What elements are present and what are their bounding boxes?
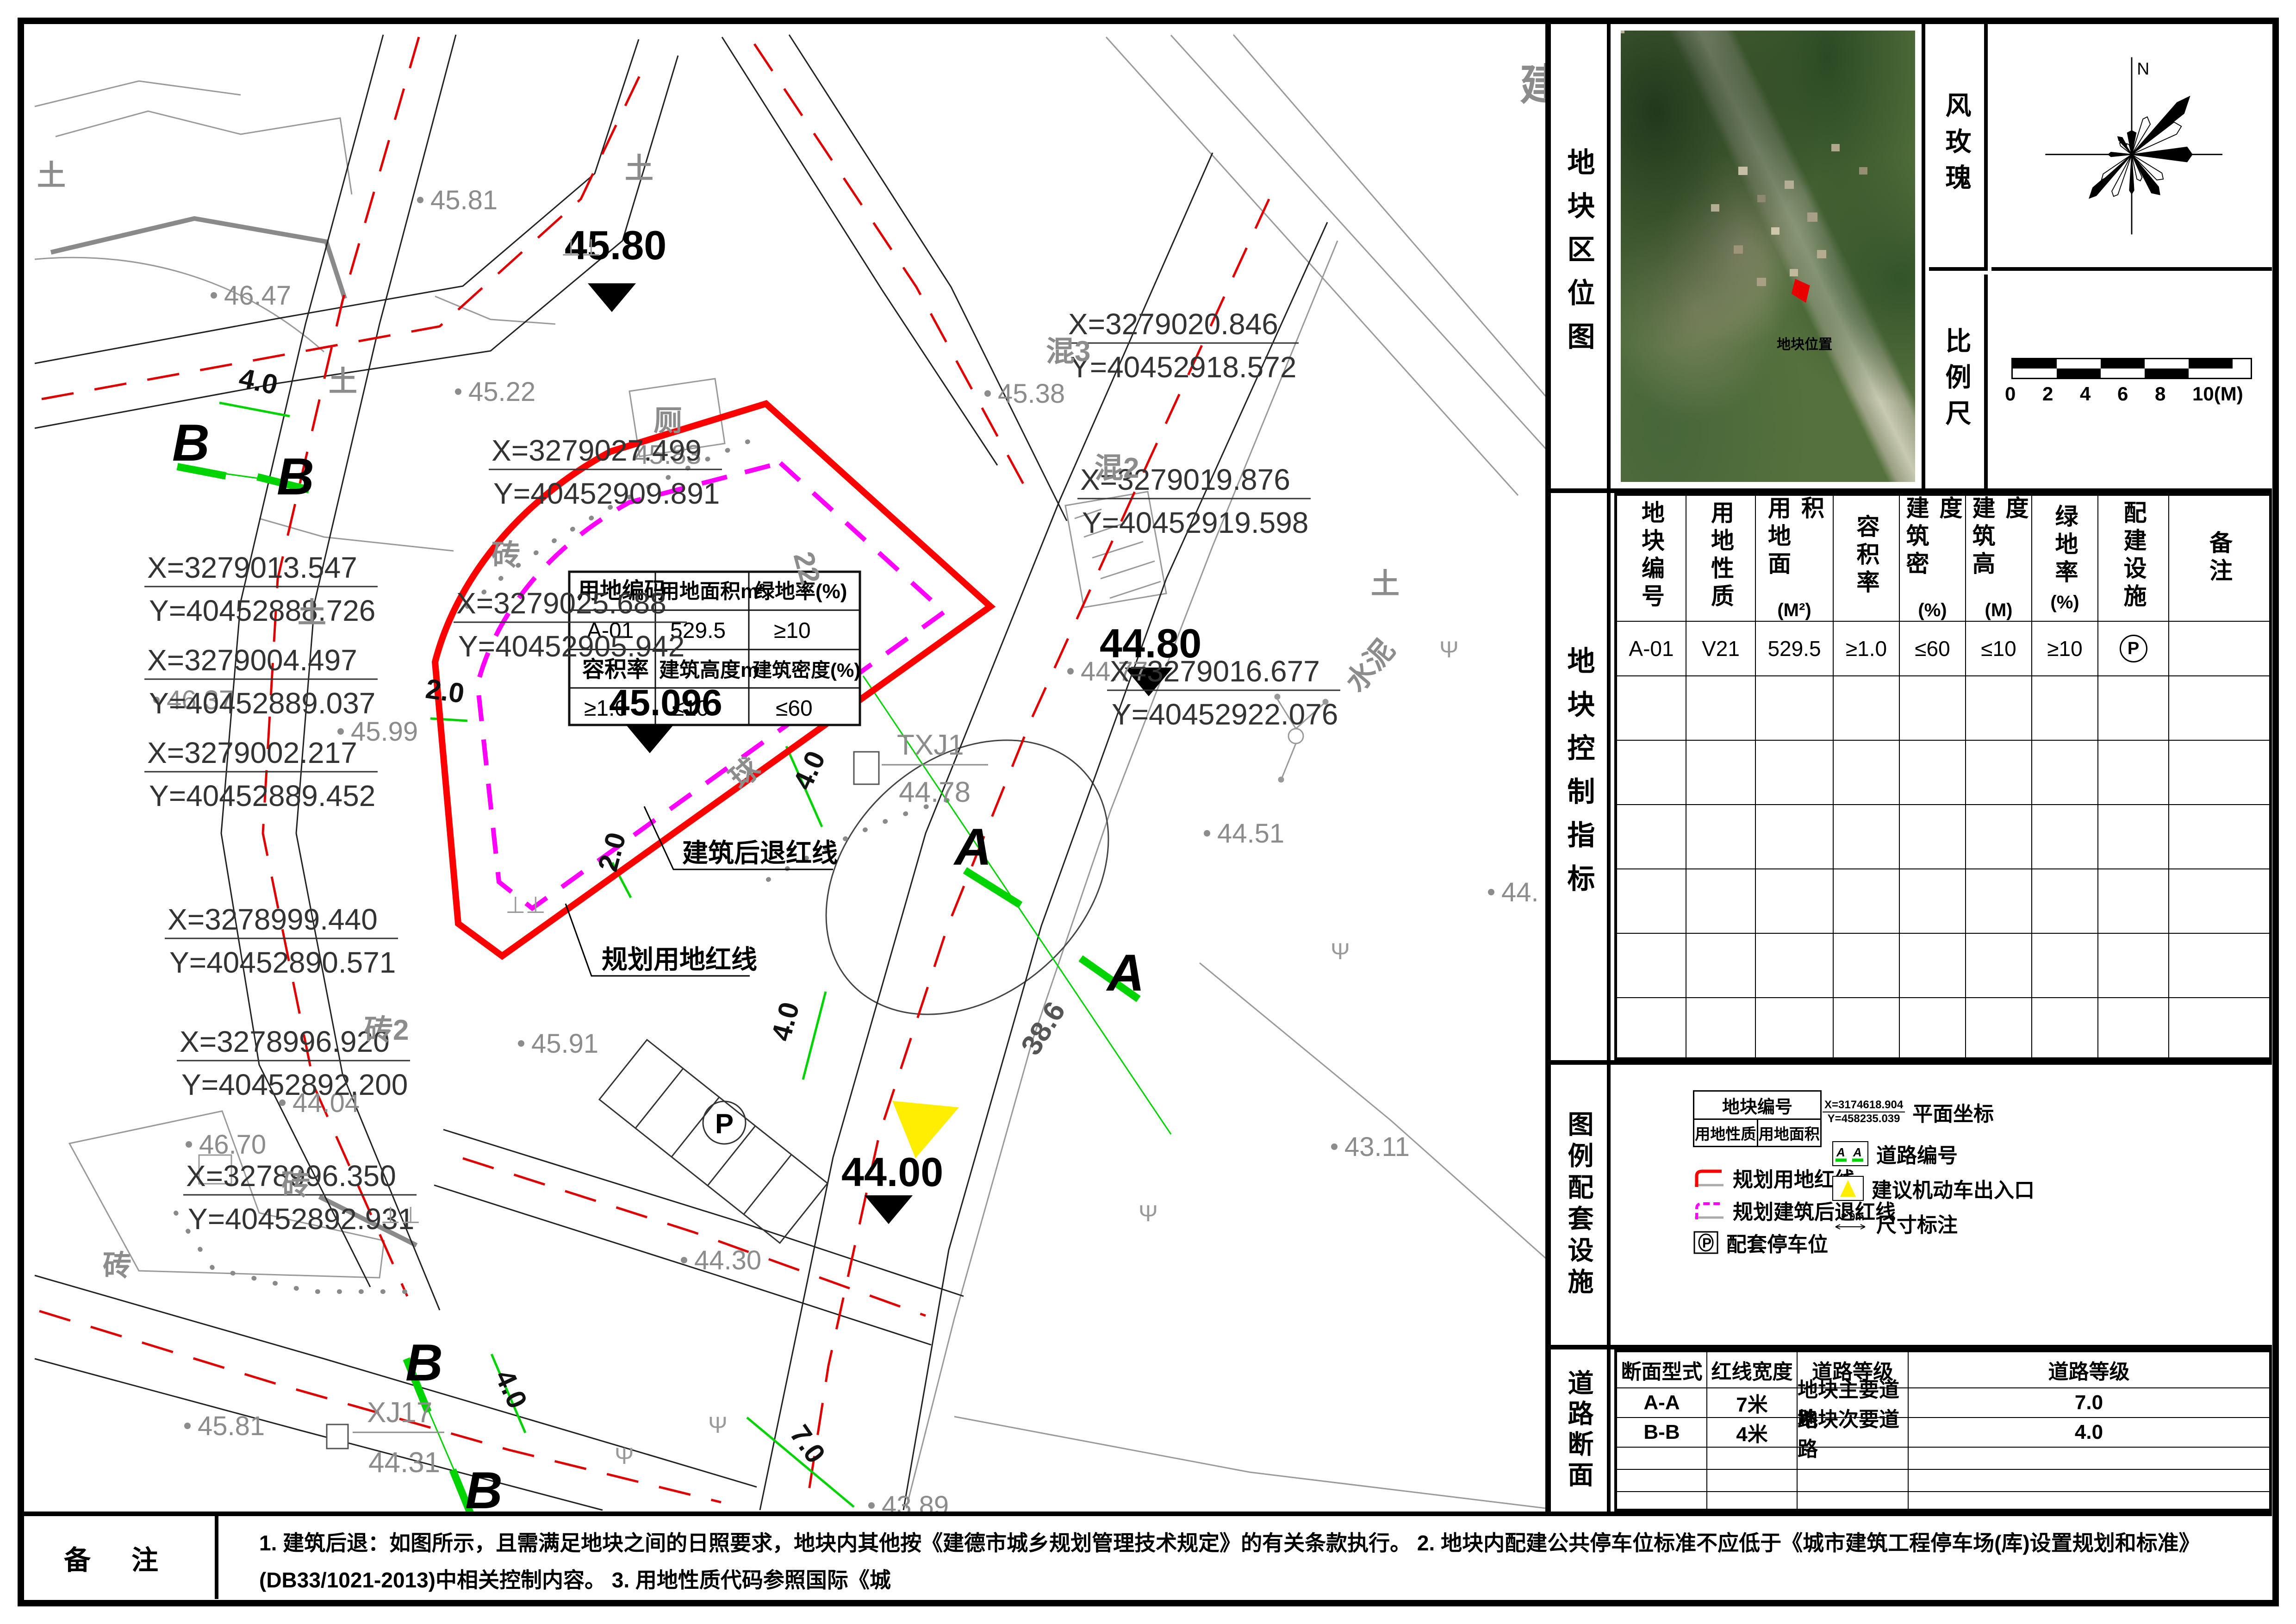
map-canvas: P 用地编码 用地面积m² 绿地率(%) A-01 529.5 ≥10 容积率 … — [24, 24, 1545, 1512]
svg-text:Y=40452922.076: Y=40452922.076 — [1112, 698, 1338, 731]
svg-text:B: B — [465, 1462, 503, 1512]
notes-label-box: 备 注 — [24, 1516, 218, 1599]
svg-text:7.0: 7.0 — [784, 1419, 832, 1469]
svg-text:X=3278996.920: X=3278996.920 — [180, 1025, 390, 1058]
svg-text:B: B — [405, 1334, 443, 1392]
svg-text:XJ17: XJ17 — [367, 1397, 432, 1429]
plot-marker-icon — [1792, 279, 1810, 303]
legend-coord-item: X=3174618.904 Y=458235.039 平面坐标 — [1823, 1097, 1994, 1127]
indicators-label: 地块控制指标 — [1559, 646, 1599, 907]
svg-text:土: 土 — [1371, 568, 1400, 600]
wind-rose-box: N — [1991, 24, 2272, 271]
spot: 45.22 — [468, 377, 535, 407]
svg-text:土: 土 — [298, 597, 326, 629]
road-number-icon: A A — [1832, 1141, 1869, 1167]
svg-text:土: 土 — [625, 153, 653, 185]
coord-callout: X=3279027.499 Y=40452909.891 — [489, 434, 722, 510]
svg-text:TXJ1: TXJ1 — [897, 729, 964, 761]
svg-text:X=3279016.677: X=3279016.677 — [1110, 655, 1320, 688]
parking-icon: P — [1693, 1230, 1719, 1255]
svg-text:2.0m: 2.0m — [1841, 1211, 1864, 1223]
panel-row-divider — [1545, 1345, 2272, 1349]
svg-text:44.78: 44.78 — [899, 776, 971, 808]
village-texture — [1621, 31, 1624, 33]
setback-icon — [1693, 1199, 1725, 1221]
vegetation-symbols: ⊥⊥ ⊥⊥ ⊥⊥ Ψ Ψ Ψ Ψ Ψ — [380, 235, 1459, 1469]
svg-text:球: 球 — [724, 752, 767, 795]
svg-text:4.0: 4.0 — [489, 1365, 533, 1413]
spot: 45.99 — [351, 717, 418, 747]
svg-text:混3: 混3 — [1046, 336, 1090, 368]
indicator-row-a01: A-01 V21 529.5 ≥1.0 ≤60 ≤10 ≥10 P — [1617, 622, 2269, 676]
wind-rose-label: 风玫瑰 — [1938, 92, 1975, 200]
svg-text:B: B — [172, 414, 210, 472]
location-map-label-box: 地块区位图 — [1551, 24, 1611, 488]
legend-roadno-item: A A 道路编号 — [1832, 1139, 1958, 1168]
road-table: 断面型式 红线宽度 道路等级 道路等级 A-A 7米 地块主要道路 7.0 B-… — [1614, 1349, 2272, 1512]
svg-text:X=3278999.440: X=3278999.440 — [168, 903, 378, 936]
svg-text:Y=40452889.452: Y=40452889.452 — [149, 779, 375, 812]
legend-dim-item: 2.0m 尺寸标注 — [1832, 1208, 1958, 1238]
scale-label-box: 比例尺 — [1929, 275, 1988, 488]
panel-row-divider — [1545, 1060, 2272, 1065]
elev-triangle-icon — [626, 725, 674, 753]
spot: 45.91 — [531, 1029, 598, 1059]
svg-text:土: 土 — [37, 160, 66, 192]
svg-text:A: A — [1106, 944, 1145, 1002]
coord-callout: X=3279020.846 Y=40452918.572 — [1065, 307, 1299, 384]
north-label: N — [2137, 59, 2149, 78]
svg-text:水泥: 水泥 — [1340, 634, 1401, 698]
road-row-aa: A-A 7米 地块主要道路 7.0 — [1617, 1388, 2269, 1418]
spot: 44.30 — [694, 1245, 761, 1275]
legend-entrance-item: 建议机动车出入口 — [1832, 1174, 2035, 1203]
legend-parking-item: P 配套停车位 — [1693, 1228, 1828, 1257]
svg-text:⊥⊥: ⊥⊥ — [505, 892, 546, 918]
svg-text:砖: 砖 — [103, 1250, 131, 1282]
inner-table-cell: 建筑密度(%) — [753, 659, 860, 681]
parking-badge: P — [2120, 635, 2147, 662]
svg-text:2.0: 2.0 — [424, 673, 467, 709]
coord-sample: X=3174618.904 Y=458235.039 — [1823, 1099, 1905, 1125]
svg-text:Y=40452919.598: Y=40452919.598 — [1082, 506, 1308, 539]
parking-p-label: P — [715, 1108, 734, 1139]
notes-line-2: 市用地分类与规划建设用地标准》 GB50137-2011执行。4. 图中尺寸标准… — [259, 1599, 2272, 1599]
notes-label: 备 注 — [64, 1538, 175, 1577]
location-map-label: 地块区位图 — [1559, 148, 1599, 365]
panel-divider — [1545, 24, 1551, 1512]
scale-label: 比例尺 — [1938, 327, 1975, 436]
elev-45-096: 45.096 — [609, 682, 722, 723]
scale-bar: 0 2 4 6 8 10(M) — [2011, 358, 2252, 405]
redline-icon — [1693, 1167, 1725, 1189]
svg-text:⊥⊥: ⊥⊥ — [380, 1202, 421, 1228]
svg-text:砖: 砖 — [492, 539, 520, 571]
svg-text:Y=40452909.891: Y=40452909.891 — [493, 477, 720, 510]
svg-text:Y=40452892.200: Y=40452892.200 — [181, 1068, 408, 1101]
spot: 45.81 — [198, 1411, 265, 1441]
svg-text:4.0: 4.0 — [236, 362, 281, 400]
svg-text:X=3279020.846: X=3279020.846 — [1068, 307, 1278, 341]
svg-text:⊥⊥: ⊥⊥ — [561, 235, 601, 261]
svg-text:X=3279027.499: X=3279027.499 — [492, 434, 702, 467]
road-section-label: 道路断面 — [1560, 1369, 1598, 1492]
svg-text:Y=40452889.037: Y=40452889.037 — [149, 687, 375, 720]
legend-content: 地块编号 用地性质 用地面积 规划用地红线 规划建筑后退红线 — [1614, 1065, 2272, 1345]
notes-line-1: 1. 建筑后退：如图所示，且需满足地块之间的日照要求，地块内其他按《建德市城乡规… — [259, 1524, 2272, 1599]
legend-redline-item: 规划用地红线 — [1693, 1163, 1855, 1193]
svg-text:38.6: 38.6 — [1015, 996, 1071, 1061]
legend-plot-box: 地块编号 用地性质 用地面积 — [1693, 1090, 1822, 1147]
elev-44-00: 44.00 — [841, 1149, 943, 1195]
inner-table-cell: ≥10 — [774, 618, 811, 643]
svg-text:B: B — [277, 448, 314, 506]
svg-text:Ψ: Ψ — [615, 1443, 634, 1469]
scale-box: 0 2 4 6 8 10(M) — [1991, 275, 2272, 488]
coord-callout: X=3279013.547 Y=40452888.726 — [144, 551, 378, 627]
wind-rose-label-box: 风玫瑰 — [1929, 24, 1988, 271]
indicators-table: 地块编号 用地性质 用地面积(M²) 容积率 建筑密度(%) 建筑高度(M) 绿… — [1614, 493, 2272, 1060]
plot-marker-label: 地块位置 — [1777, 333, 1832, 353]
spot: 45.81 — [430, 185, 498, 215]
svg-text:A: A — [953, 818, 992, 876]
svg-text:Ψ: Ψ — [1439, 637, 1459, 662]
coord-callout: X=3279016.677 Y=40452922.076 — [1107, 655, 1340, 731]
elev-triangle-icon — [588, 283, 636, 312]
spot: 43.89 — [882, 1491, 949, 1512]
notes-divider — [24, 1512, 2272, 1516]
indicators-label-box: 地块控制指标 — [1551, 493, 1611, 1060]
spot: 44.51 — [1217, 818, 1284, 849]
svg-text:Y=40452888.726: Y=40452888.726 — [149, 594, 375, 627]
spot: 43.11 — [1344, 1132, 1410, 1162]
satellite-box: 地块位置 — [1614, 24, 1925, 488]
svg-text:Ψ: Ψ — [1331, 938, 1350, 964]
svg-text:P: P — [1702, 1236, 1711, 1251]
svg-text:44.31: 44.31 — [368, 1447, 440, 1479]
legend-label: 图例配套设施 — [1560, 1111, 1598, 1299]
panel-row-divider — [1545, 488, 2272, 493]
legend-label-box: 图例配套设施 — [1551, 1065, 1611, 1345]
svg-text:厕: 厕 — [653, 405, 682, 437]
svg-text:建筑后退红线: 建筑后退红线 — [682, 838, 838, 868]
spot: 46.47 — [224, 281, 291, 311]
spot: 45.38 — [998, 379, 1065, 409]
svg-text:X=3279013.547: X=3279013.547 — [147, 551, 357, 584]
svg-text:Ψ: Ψ — [1139, 1200, 1158, 1226]
svg-text:A: A — [1853, 1145, 1862, 1159]
coord-callout: X=3279002.217 Y=40452889.452 — [144, 736, 378, 812]
svg-text:X=3279025.688: X=3279025.688 — [456, 587, 666, 620]
svg-text:X=3279004.497: X=3279004.497 — [147, 643, 357, 677]
building-blob — [772, 684, 1164, 1070]
svg-text:砖2: 砖2 — [364, 1014, 409, 1046]
dimension-icon: 2.0m — [1832, 1210, 1869, 1236]
svg-text:土: 土 — [329, 366, 357, 398]
svg-text:Y=40452890.571: Y=40452890.571 — [169, 946, 396, 979]
coord-callout: X=3279004.497 Y=40452889.037 — [144, 643, 378, 720]
coord-callout: X=3278999.440 Y=40452890.571 — [165, 903, 398, 979]
notes-text-box: 1. 建筑后退：如图所示，且需满足地块之间的日照要求，地块内其他按《建德市城乡规… — [222, 1516, 2272, 1599]
svg-text:Y=40452918.572: Y=40452918.572 — [1070, 350, 1296, 384]
svg-text:Y=40452905.942: Y=40452905.942 — [458, 630, 684, 663]
svg-text:Ψ: Ψ — [708, 1412, 728, 1438]
svg-text:砖: 砖 — [281, 1169, 310, 1201]
inner-table-cell: ≤60 — [776, 696, 813, 721]
wind-rose-petals — [2090, 96, 2192, 198]
scale-ticks: 0 2 4 6 8 10(M) — [2011, 383, 2252, 405]
satellite-thumbnail: 地块位置 — [1621, 31, 1915, 482]
spot: 46.70 — [199, 1130, 266, 1160]
spot-elevations: 45.81 46.47 45.22 45.83 45.38 46.37 45.9… — [153, 185, 1539, 1512]
spot: 44. — [1501, 877, 1539, 907]
svg-text:规划用地红线: 规划用地红线 — [602, 945, 757, 974]
svg-text:4.0: 4.0 — [765, 999, 805, 1044]
road-section-label-box: 道路断面 — [1551, 1349, 1611, 1512]
elev-triangle-icon — [865, 1195, 913, 1224]
svg-text:建: 建 — [1520, 62, 1545, 109]
svg-text:混2: 混2 — [1095, 452, 1139, 484]
entrance-icon — [1832, 1175, 1864, 1201]
svg-text:X=3279002.217: X=3279002.217 — [147, 736, 357, 769]
svg-text:A: A — [1836, 1145, 1845, 1159]
inner-table-cell: 用地面积m² — [659, 580, 765, 603]
wind-rose: N — [2002, 37, 2261, 255]
svg-text:4.0: 4.0 — [787, 746, 831, 794]
road-row-bb: B-B 4米 地块次要道路 4.0 — [1617, 1418, 2269, 1448]
planning-sheet: P 用地编码 用地面积m² 绿地率(%) A-01 529.5 ≥10 容积率 … — [0, 0, 2296, 1624]
